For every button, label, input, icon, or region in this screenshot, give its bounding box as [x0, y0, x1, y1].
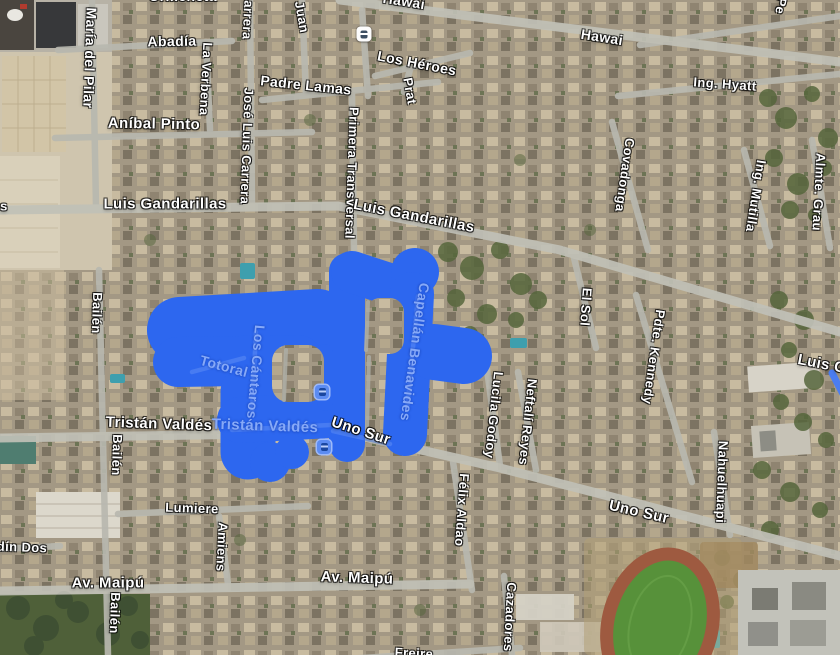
street-label-hawai-1: Hawai: [382, 0, 426, 11]
street-label-cazadores: Cazadores: [502, 582, 519, 652]
street-label-bailen-3: Bailén: [108, 592, 122, 634]
street-label-los-cantaros: Los Cántaros: [245, 324, 267, 419]
street-label-uno-sur-1: Uno Sur: [330, 414, 393, 447]
bus-glyph: [319, 388, 326, 396]
street-label-pe-partial: Pe: [773, 0, 789, 15]
street-label-felix-aldao: Félix Aldao: [453, 473, 471, 547]
street-label-freire: Freire: [394, 646, 433, 655]
street-label-tristan-valdes-1: Tristán Valdés: [106, 415, 213, 434]
street-label-luis-gandarillas-1: Luis Gandarillas: [103, 197, 226, 212]
bus-station-icon[interactable]: [315, 385, 329, 399]
street-label-juan: Juan: [293, 0, 311, 34]
street-label-nahuelhuapi: Nahuelhuapi: [714, 441, 730, 524]
street-label-lucila-godoy: Lucila Godoy: [483, 371, 505, 459]
street-label-pdte-kennedy: Pdte. Kennedy: [641, 309, 667, 405]
street-label-maria-del-pilar: María del Pilar: [81, 7, 99, 108]
street-label-urmeneta: Urmeneta: [149, 0, 217, 3]
street-label-capellan-benavides: Capellán Benavides: [398, 282, 431, 422]
bus-glyph: [321, 443, 328, 451]
map-labels-layer: UrmenetaHawaiHawaiAbadíaMaría del Pilara…: [0, 0, 840, 655]
street-label-luis-g-partial: Luis G: [796, 352, 840, 376]
street-label-tristan-valdes-2: Tristán Valdés: [212, 417, 319, 436]
street-label-neftali-reyes: Neftalí Reyes: [517, 378, 539, 466]
street-label-s-partial: s: [0, 200, 8, 213]
street-label-jose-luis-carrera: José Luis Carrera: [238, 87, 255, 204]
street-label-hawai-2: Hawai: [580, 27, 624, 47]
street-label-almte-grau: Almte. Grau: [810, 153, 827, 232]
street-label-bailen-2: Bailén: [110, 434, 124, 476]
street-label-totoral: Totoral: [198, 353, 249, 379]
street-label-ing-mutilla: Ing. Mutilla: [744, 159, 768, 233]
street-label-luis-gandarillas-2: Luis Gandarillas: [352, 197, 476, 235]
bus-glyph: [361, 30, 368, 38]
street-label-din-dos-partial: dín Dos: [0, 540, 47, 555]
street-label-av-maipu-1: Av. Maipú: [72, 576, 145, 591]
street-label-bailen-1: Bailén: [90, 292, 104, 334]
street-label-la-verbena: La Verbena: [198, 42, 215, 116]
street-label-primera-transversal: Primera Transversal: [343, 107, 361, 239]
street-label-ing-hyatt: Ing. Hyatt: [693, 75, 757, 92]
street-label-covadonga: Covadonga: [613, 137, 636, 212]
street-label-los-heroes: Los Héroes: [376, 48, 457, 77]
bus-station-icon[interactable]: [357, 27, 372, 42]
street-label-amiens: Amiens: [214, 522, 230, 572]
street-label-el-sol: El Sol: [578, 287, 594, 326]
street-label-prat: Prat: [401, 77, 418, 106]
street-label-carrera-partial: arrera: [240, 0, 255, 40]
street-label-anibal-pinto: Aníbal Pinto: [108, 116, 201, 133]
street-label-uno-sur-2: Uno Sur: [608, 498, 671, 526]
street-label-lumiere: Lumiere: [165, 501, 219, 516]
bus-station-icon[interactable]: [317, 440, 331, 454]
street-label-padre-lamas: Padre Lamas: [260, 73, 353, 96]
street-label-abadia: Abadía: [147, 34, 196, 49]
map-canvas[interactable]: UrmenetaHawaiHawaiAbadíaMaría del Pilara…: [0, 0, 840, 655]
street-label-av-maipu-2: Av. Maipú: [320, 569, 393, 587]
